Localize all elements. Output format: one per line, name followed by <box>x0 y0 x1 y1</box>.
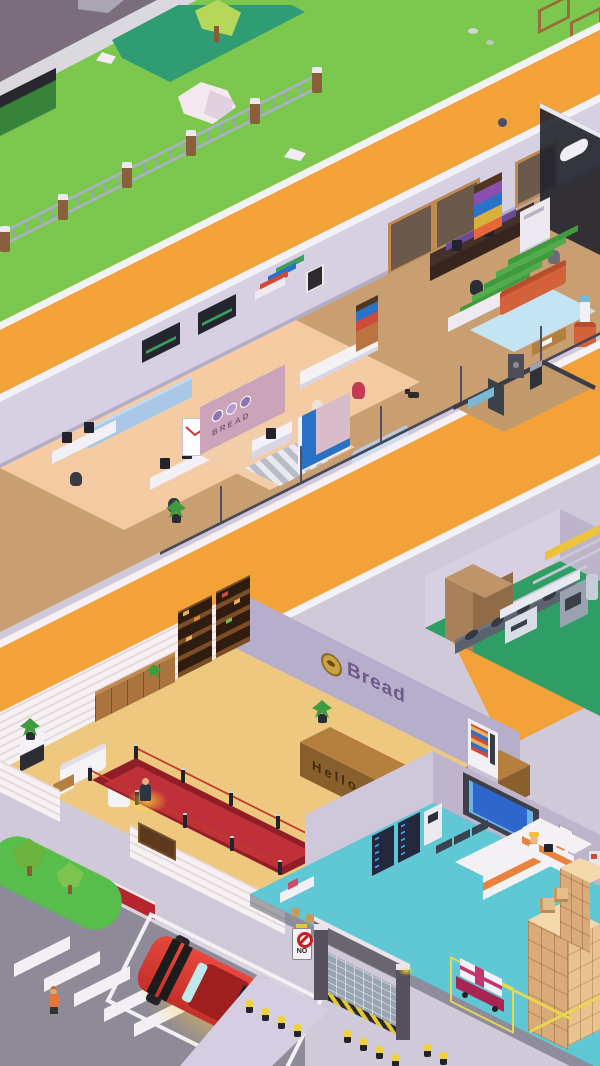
glass-post <box>300 446 302 482</box>
office-chair <box>70 472 82 486</box>
stanchion-post <box>230 836 234 851</box>
wall-clock <box>498 118 507 127</box>
office-chair <box>470 280 483 295</box>
bollard <box>344 1030 351 1043</box>
bollard <box>392 1054 399 1066</box>
spotlight-dot <box>398 966 414 976</box>
game-viewport: BREAD Bread <box>0 0 600 1066</box>
stanchion-post <box>134 744 138 759</box>
stanchion-post <box>183 813 187 828</box>
warehouse-clerk[interactable] <box>528 832 540 854</box>
security-guard[interactable] <box>140 784 151 801</box>
cart-wheel <box>462 992 468 998</box>
bollard <box>294 1024 301 1037</box>
dock-pillar <box>314 924 328 1000</box>
fence-post <box>186 130 196 156</box>
fence-post <box>0 226 10 252</box>
logo-circle <box>226 401 237 418</box>
water-cooler <box>580 296 590 322</box>
dog <box>408 392 419 398</box>
safe-vault[interactable] <box>508 354 524 378</box>
glass-post <box>540 326 542 362</box>
fence-post <box>312 67 322 93</box>
glass-post <box>220 486 222 522</box>
cart-wheel <box>492 1006 498 1012</box>
stanchion-post <box>181 768 185 783</box>
tree-trunk <box>27 866 32 876</box>
bollard <box>262 1008 269 1021</box>
stanchion-post <box>88 766 92 781</box>
monitor <box>84 422 94 433</box>
bollard <box>376 1046 383 1059</box>
monitor <box>62 432 72 443</box>
bread-badge-icon <box>321 649 342 681</box>
glass-post <box>460 366 462 402</box>
logo-circle <box>240 394 251 410</box>
no-entry-sign: NO <box>292 928 312 960</box>
no-entry-icon <box>297 932 313 948</box>
bollard <box>360 1038 367 1051</box>
monitor <box>160 458 170 469</box>
glass-post <box>380 406 382 442</box>
monitor <box>452 240 462 251</box>
no-entry-text: NO <box>293 948 311 955</box>
fence-post <box>122 162 132 188</box>
bollard <box>246 1000 253 1013</box>
fence-post <box>58 194 68 220</box>
pebbles <box>468 28 478 34</box>
stanchion-post <box>276 814 280 829</box>
stanchion-post <box>278 860 282 875</box>
stanchion-post <box>229 791 233 806</box>
stool <box>306 914 314 923</box>
pebbles <box>486 40 494 45</box>
monitor <box>266 428 276 439</box>
bush-trunk <box>214 26 219 42</box>
office-chair <box>512 262 525 277</box>
loose-box <box>554 888 568 902</box>
tree-trunk <box>68 885 72 894</box>
steel-tank <box>586 574 598 600</box>
bollard <box>278 1016 285 1029</box>
bollard <box>424 1044 431 1057</box>
stool <box>292 908 300 917</box>
pedestrian <box>46 986 60 1016</box>
fence-post <box>250 98 260 124</box>
bollard <box>440 1052 447 1065</box>
bread-wall-sign: Bread <box>347 658 406 709</box>
executive-chair-red <box>352 382 365 399</box>
logo-circle <box>212 408 223 424</box>
laptop <box>544 844 553 852</box>
armchair-orange <box>574 322 596 347</box>
loose-box <box>540 898 555 913</box>
